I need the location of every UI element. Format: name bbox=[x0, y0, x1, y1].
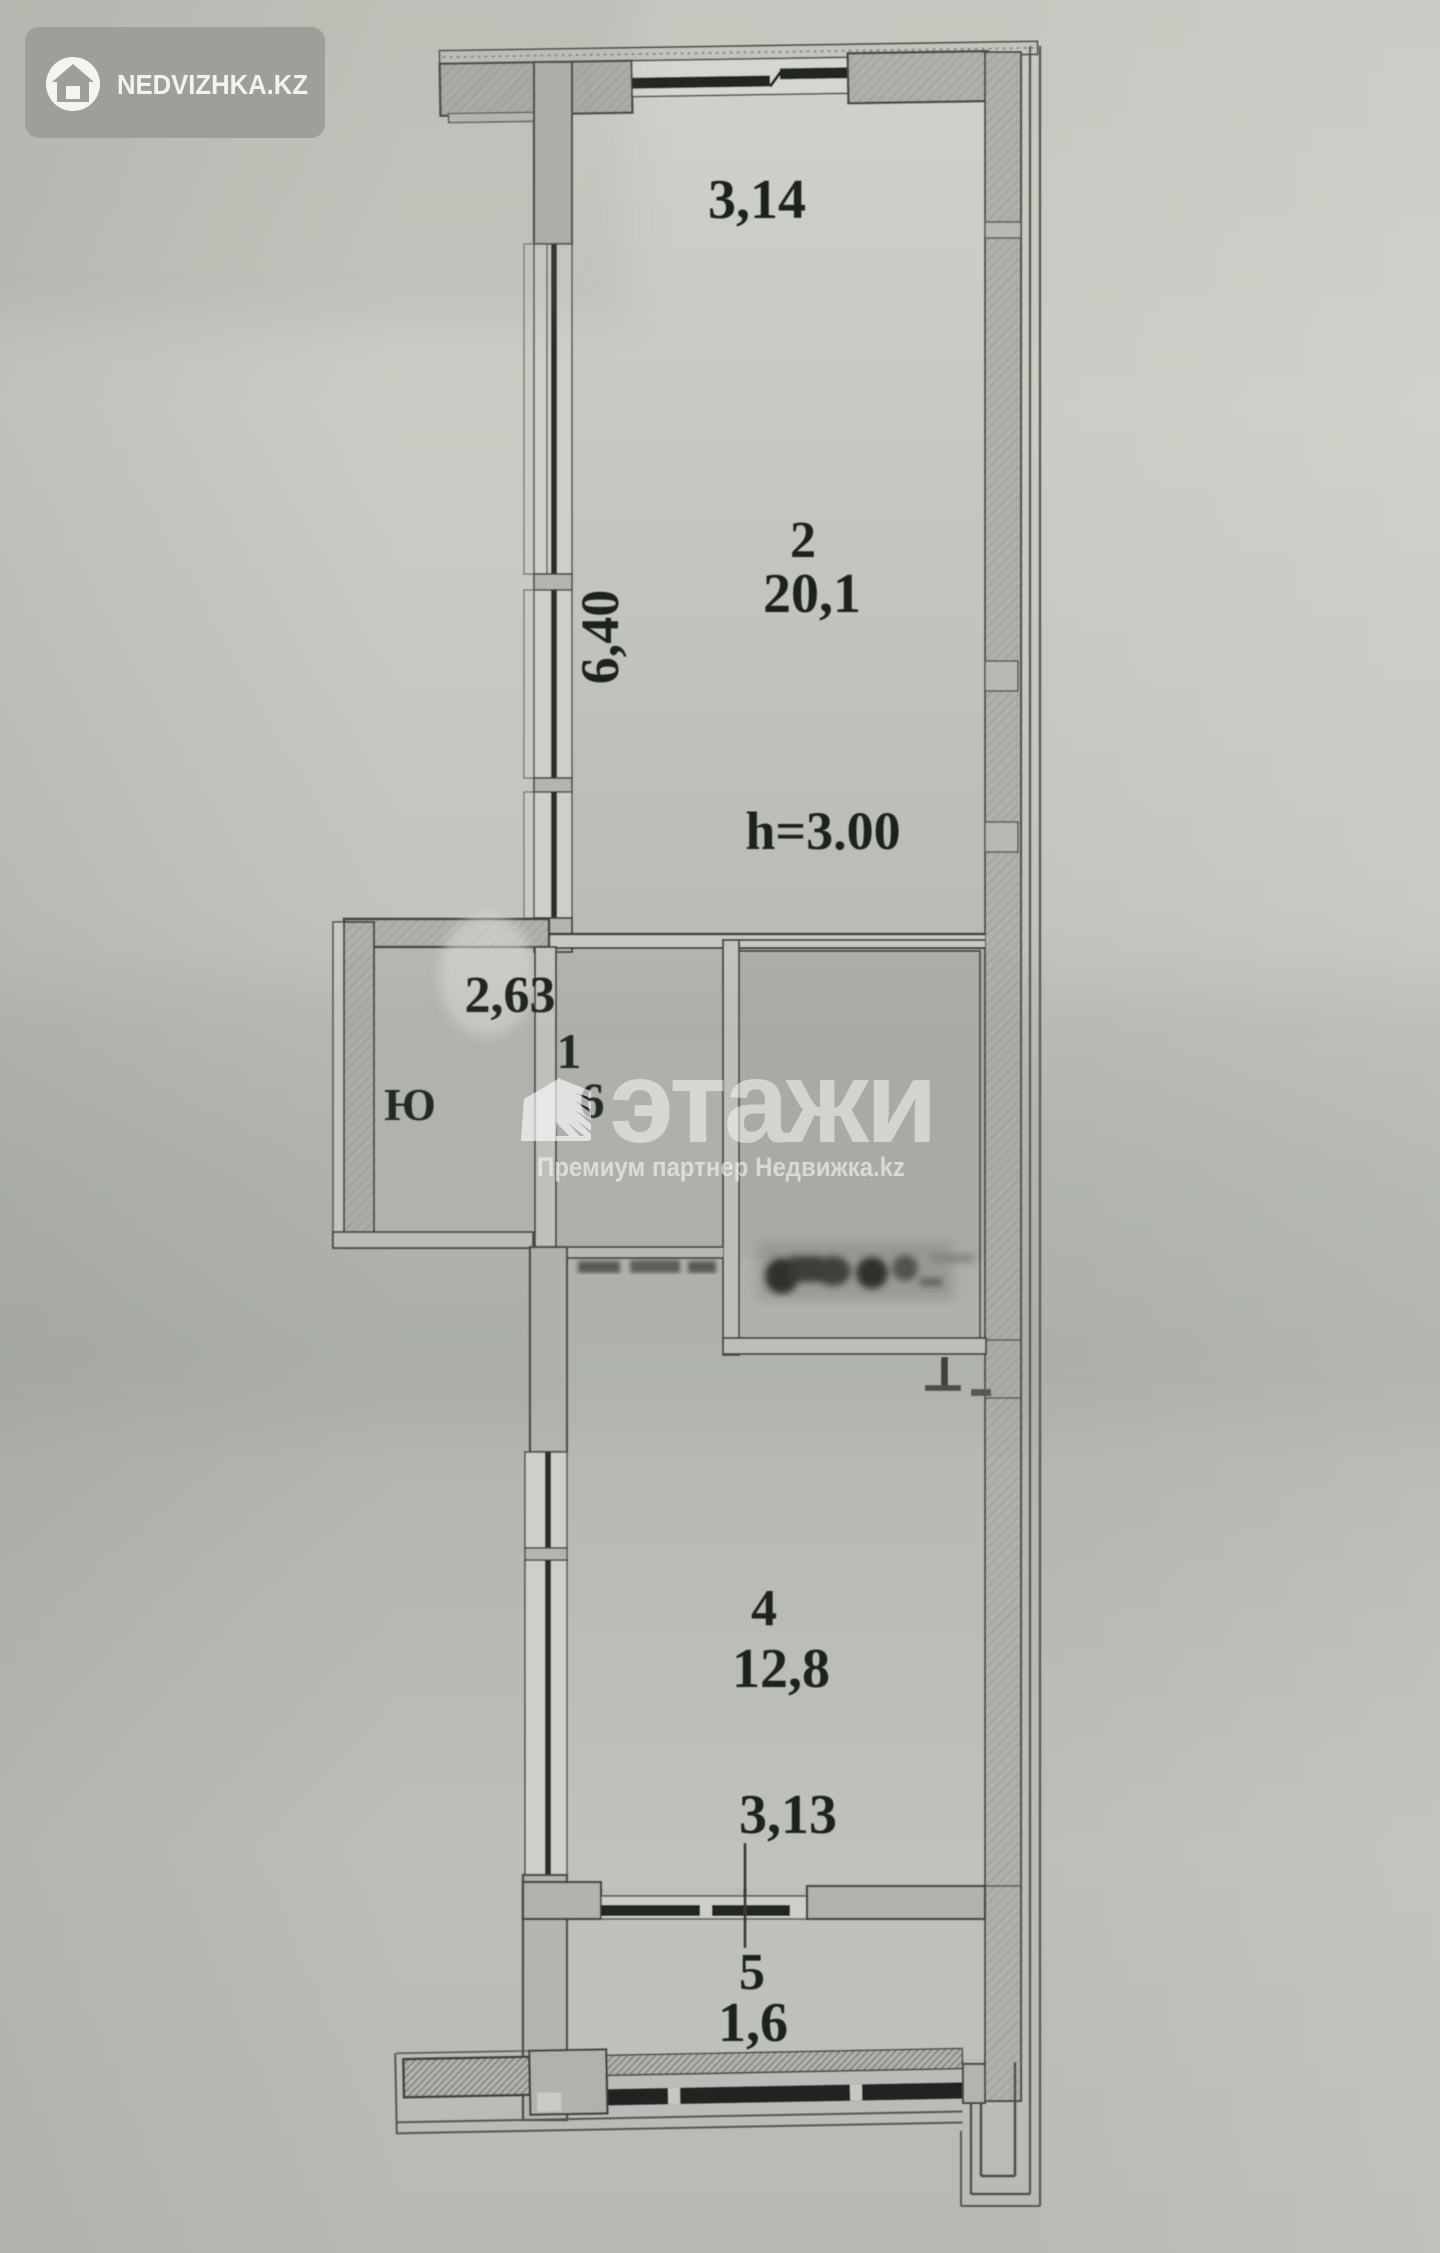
svg-text:12,8: 12,8 bbox=[732, 1638, 830, 1700]
svg-text:NEDVIZHKA.KZ: NEDVIZHKA.KZ bbox=[117, 69, 308, 100]
svg-text:3,14: 3,14 bbox=[708, 169, 806, 231]
svg-text:4: 4 bbox=[751, 1580, 777, 1637]
svg-text:3,13: 3,13 bbox=[739, 1784, 837, 1846]
svg-text:Премиум партнер Недвижка.kz: Премиум партнер Недвижка.kz bbox=[537, 1152, 905, 1182]
svg-text:этажи: этажи bbox=[609, 1036, 934, 1167]
svg-text:2: 2 bbox=[790, 512, 816, 569]
svg-text:20,1: 20,1 bbox=[763, 563, 861, 625]
svg-text:6,40: 6,40 bbox=[570, 590, 630, 685]
svg-text:1,6: 1,6 bbox=[718, 1992, 788, 2054]
svg-text:h=3.00: h=3.00 bbox=[745, 801, 900, 861]
